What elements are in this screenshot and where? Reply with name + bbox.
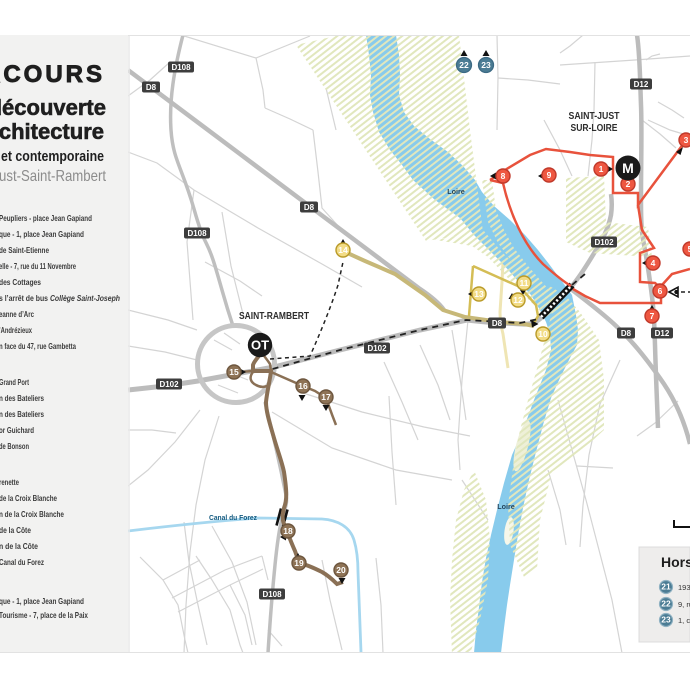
svg-text:Canal du Forez: Canal du Forez [209, 513, 257, 522]
svg-text:or Guichard: or Guichard [0, 425, 34, 435]
svg-text:Peupliers - place Jean Gapiand: Peupliers - place Jean Gapiand [0, 213, 92, 223]
svg-text:n de la Croix Blanche: n de la Croix Blanche [0, 509, 64, 519]
svg-text:de Bonson: de Bonson [0, 441, 29, 451]
svg-text:n face du 47, rue Gambetta: n face du 47, rue Gambetta [0, 341, 76, 351]
svg-text:1, ch: 1, ch [678, 616, 690, 625]
svg-text:Canal du Forez: Canal du Forez [0, 557, 44, 567]
svg-text:Loire: Loire [447, 187, 465, 196]
svg-text:10: 10 [538, 329, 548, 339]
svg-text:n des Bateliers: n des Bateliers [0, 393, 44, 403]
svg-text:elle - 7, rue du 11 Novembre: elle - 7, rue du 11 Novembre [0, 261, 76, 271]
svg-text:9, ru: 9, ru [678, 600, 690, 609]
svg-text:13: 13 [474, 289, 484, 299]
svg-text:OT: OT [251, 338, 269, 353]
svg-text:D8: D8 [304, 203, 315, 212]
svg-text:11: 11 [520, 278, 529, 288]
svg-text:14: 14 [338, 245, 348, 255]
svg-text:1930: 1930 [678, 583, 690, 592]
svg-text:2: 2 [626, 179, 631, 189]
svg-text:s l’arrêt de bus Collège Saint: s l’arrêt de bus Collège Saint-Joseph [0, 293, 120, 303]
svg-text:D12: D12 [634, 80, 649, 89]
svg-text:D108: D108 [187, 229, 207, 238]
svg-text:6: 6 [658, 286, 663, 296]
svg-text:20: 20 [336, 565, 346, 575]
svg-text:7: 7 [650, 311, 655, 321]
svg-text:21: 21 [661, 582, 671, 592]
svg-text:23: 23 [481, 60, 491, 70]
svg-text:19: 19 [294, 558, 304, 568]
svg-text:D102: D102 [159, 380, 179, 389]
svg-text:SAINT-JUST: SAINT-JUST [569, 110, 620, 122]
svg-text:D8: D8 [146, 83, 157, 92]
svg-text:12: 12 [513, 295, 523, 305]
svg-text:1: 1 [599, 164, 604, 174]
svg-text:17: 17 [321, 392, 331, 402]
svg-text:D12: D12 [655, 329, 670, 338]
svg-text:découverte: découverte [0, 95, 106, 120]
svg-text:23: 23 [661, 615, 671, 625]
svg-text:de la Croix Blanche: de la Croix Blanche [0, 493, 57, 503]
svg-text:renette: renette [0, 477, 19, 487]
svg-text:eanne d’Arc: eanne d’Arc [0, 309, 34, 319]
svg-text:22: 22 [661, 599, 671, 609]
svg-text:D8: D8 [492, 319, 503, 328]
svg-text:de Saint-Etienne: de Saint-Etienne [0, 245, 49, 255]
svg-text:SAINT-RAMBERT: SAINT-RAMBERT [239, 310, 309, 322]
svg-text:3: 3 [684, 135, 689, 145]
svg-text:n des Bateliers: n des Bateliers [0, 409, 44, 419]
svg-text:4: 4 [651, 258, 656, 268]
svg-text:SUR-LOIRE: SUR-LOIRE [571, 122, 618, 134]
svg-text:D108: D108 [262, 590, 282, 599]
svg-text:n de la Côte: n de la Côte [0, 541, 38, 551]
svg-text:22: 22 [459, 60, 469, 70]
svg-text:’Andrézieux: ’Andrézieux [0, 325, 32, 335]
svg-text:de la Côte: de la Côte [0, 525, 31, 535]
svg-text:des Cottages: des Cottages [0, 277, 41, 287]
svg-text:Saint-Just-Saint-Rambert: Saint-Just-Saint-Rambert [0, 168, 106, 185]
svg-text:ancienne et contemporaine: ancienne et contemporaine [0, 148, 104, 165]
svg-text:15: 15 [229, 367, 239, 377]
svg-text:que - 1, place Jean Gapiand: que - 1, place Jean Gapiand [0, 229, 84, 239]
svg-text:M: M [622, 160, 634, 176]
svg-text:architecture: architecture [0, 119, 104, 144]
svg-text:PARCOURS: PARCOURS [0, 61, 105, 88]
svg-text:18: 18 [283, 526, 293, 536]
svg-text:Tourisme - 7, place de la Paix: Tourisme - 7, place de la Paix [0, 610, 88, 620]
svg-text:D102: D102 [594, 238, 614, 247]
svg-text:que - 1, place Jean Gapiand: que - 1, place Jean Gapiand [0, 596, 84, 606]
svg-text:8: 8 [501, 171, 506, 181]
svg-text:D8: D8 [621, 329, 632, 338]
svg-text:Hors parcours: Hors parcours [661, 554, 690, 570]
svg-text:Grand Port: Grand Port [0, 377, 29, 387]
svg-text:16: 16 [298, 381, 308, 391]
svg-text:Loire: Loire [497, 502, 515, 511]
svg-text:D108: D108 [171, 63, 191, 72]
svg-text:9: 9 [547, 170, 552, 180]
svg-text:D102: D102 [367, 344, 387, 353]
